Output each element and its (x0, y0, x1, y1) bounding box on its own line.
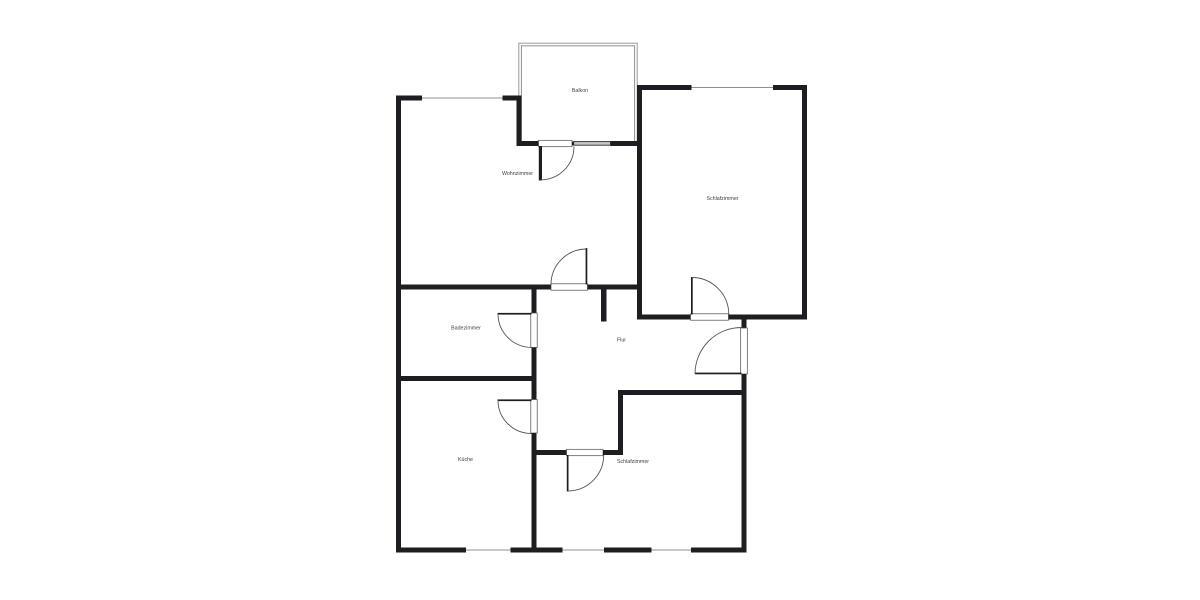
svg-text:Flur: Flur (617, 338, 626, 344)
svg-text:Wohnzimmer: Wohnzimmer (502, 171, 533, 177)
svg-text:Schlafzimmer: Schlafzimmer (617, 459, 649, 465)
svg-text:Balkon: Balkon (572, 88, 588, 94)
svg-text:Badezimmer: Badezimmer (451, 326, 481, 332)
svg-text:Küche: Küche (458, 457, 473, 463)
svg-text:Schlafzimmer: Schlafzimmer (706, 196, 738, 202)
